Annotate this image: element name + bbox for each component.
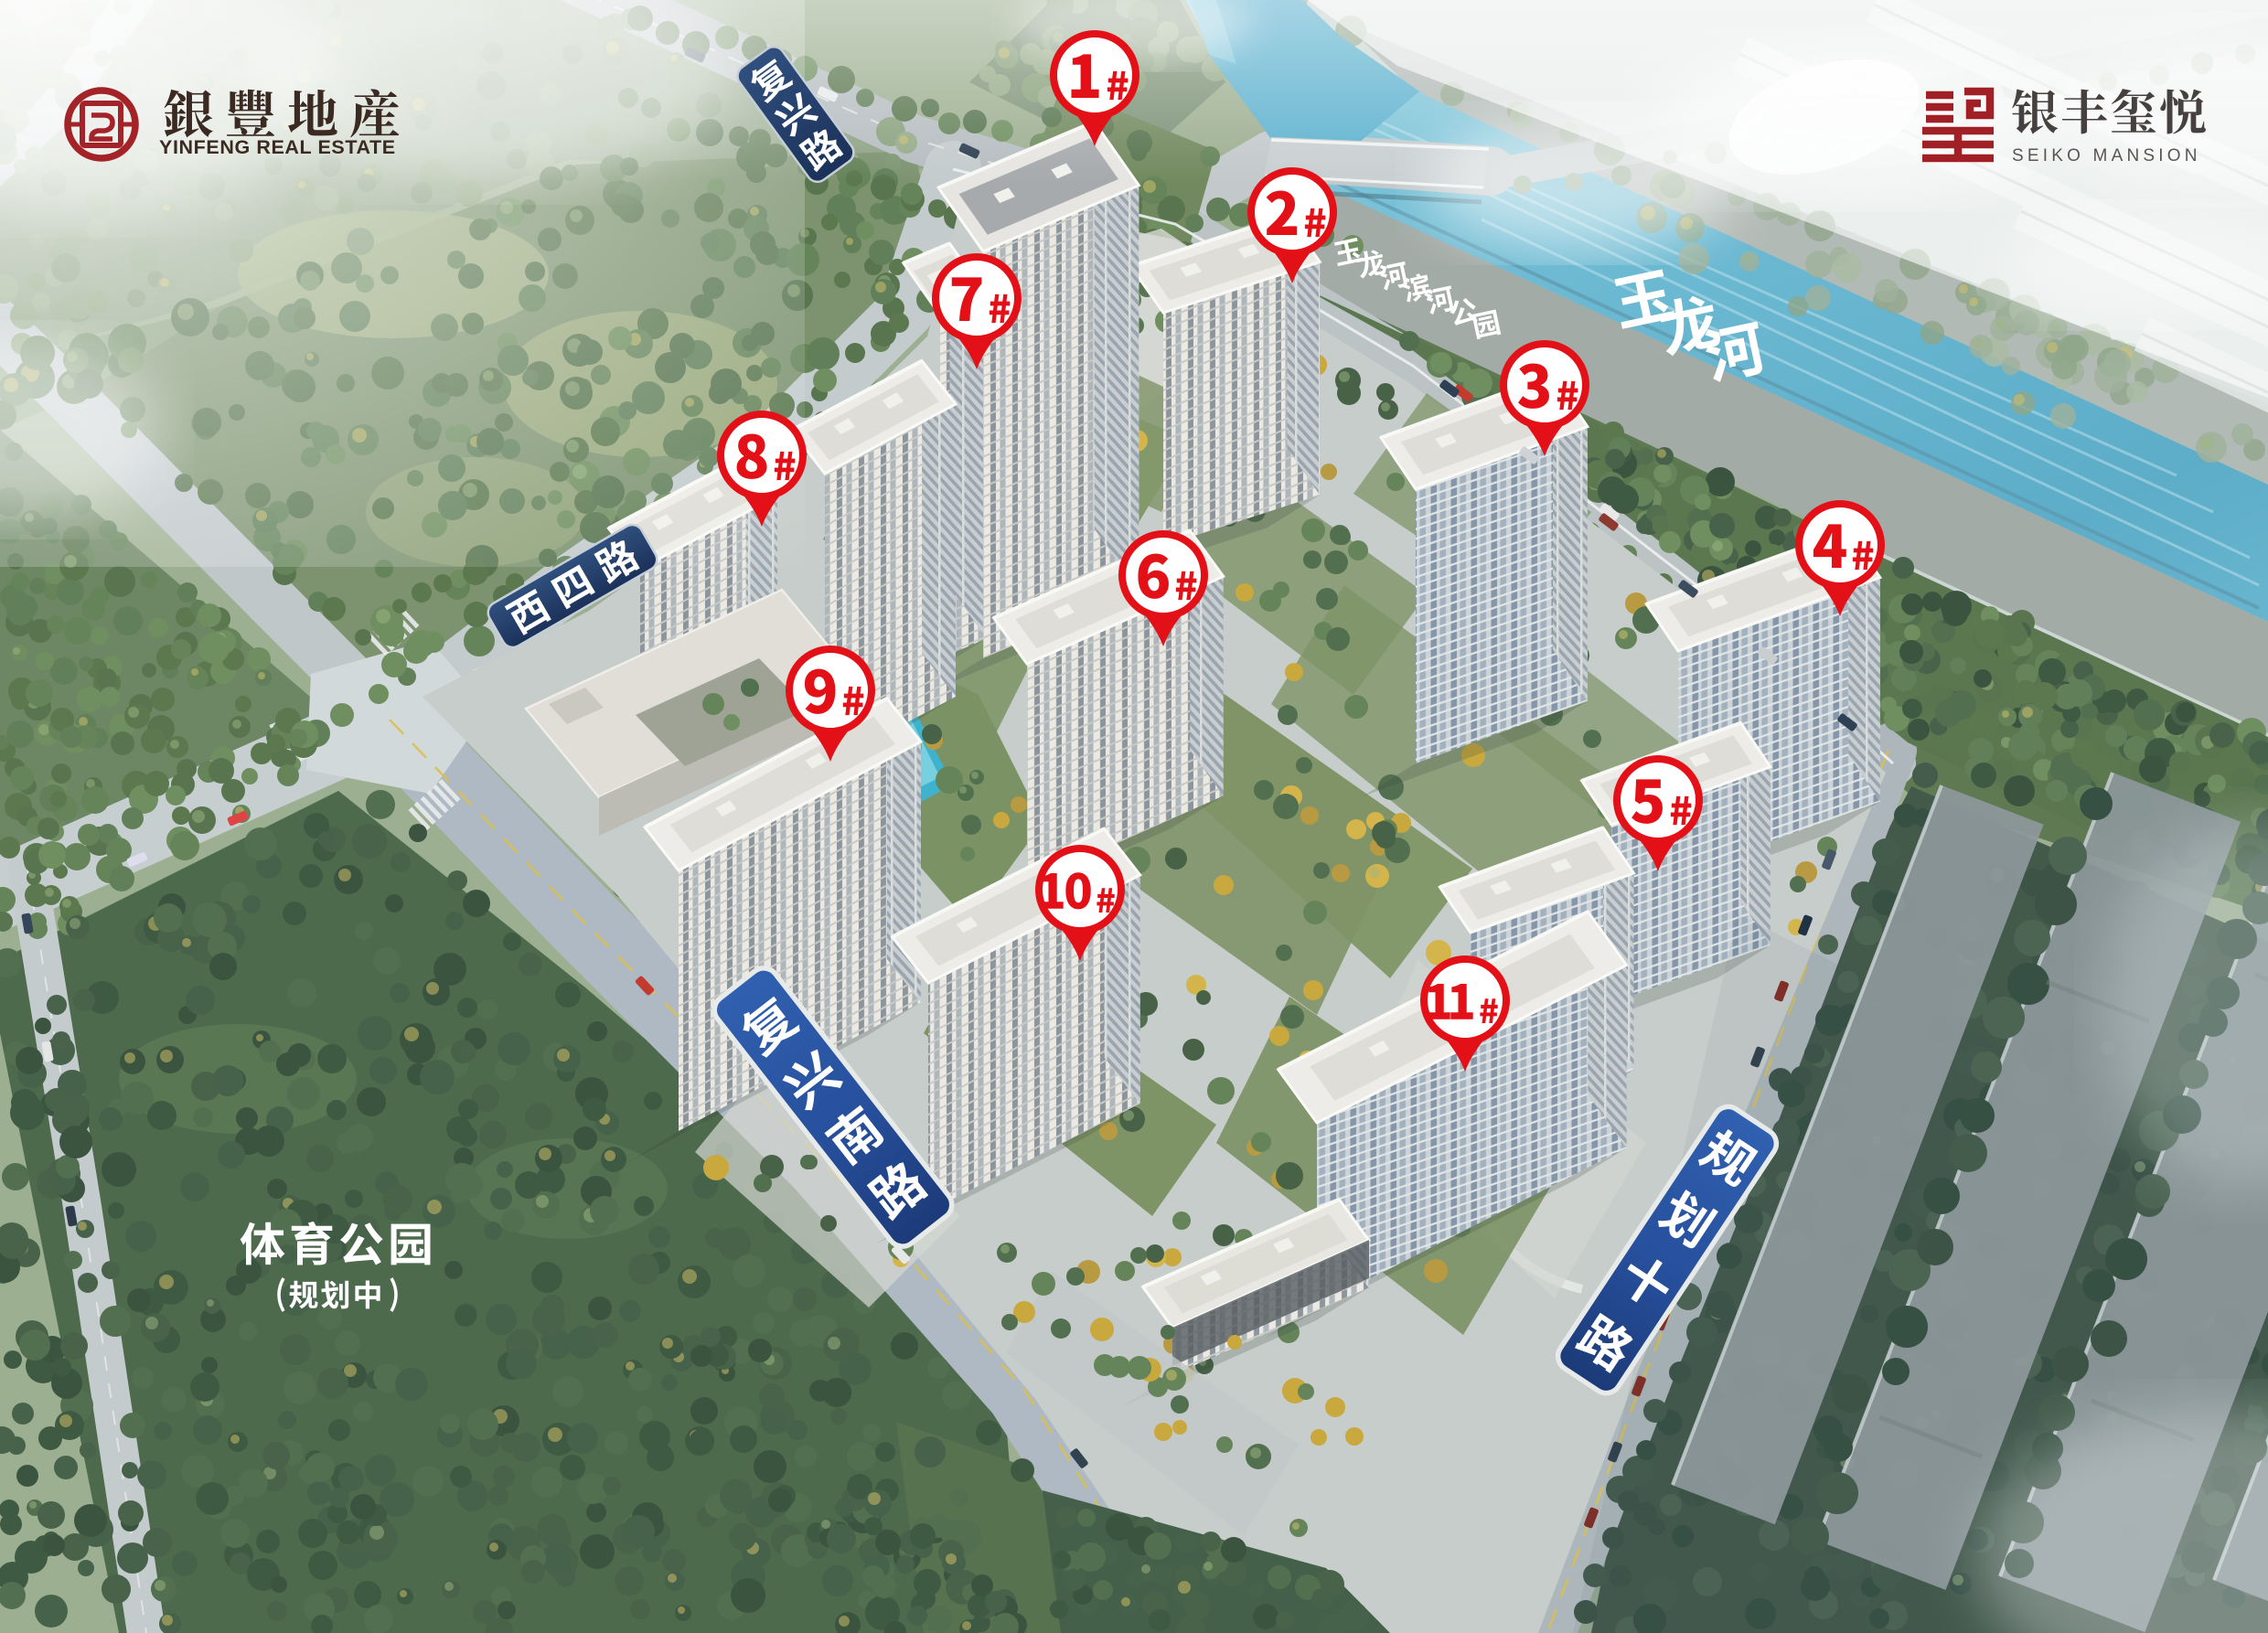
svg-text:YINFENG REAL ESTATE: YINFENG REAL ESTATE xyxy=(159,136,396,158)
svg-text:SEIKO MANSION: SEIKO MANSION xyxy=(2012,146,2201,165)
